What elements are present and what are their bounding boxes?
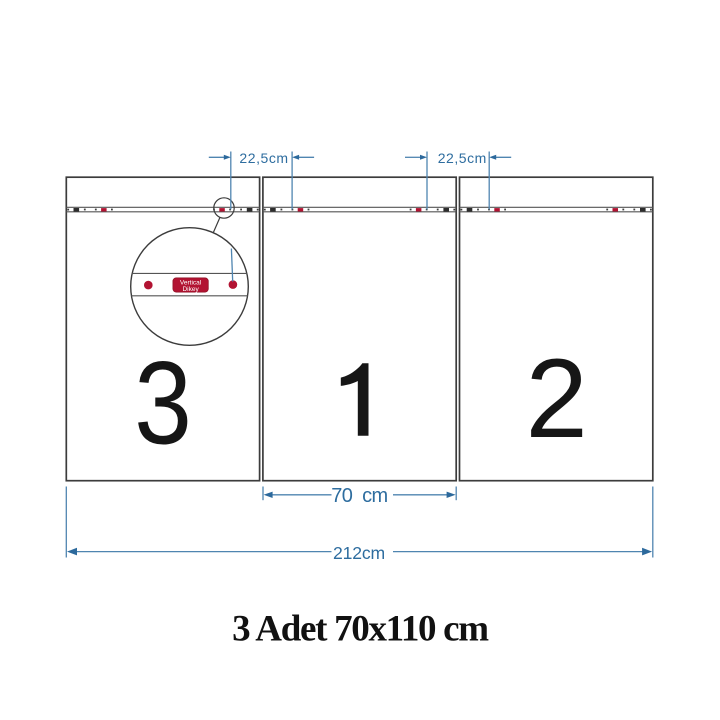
svg-text:70 cm: 70 cm	[331, 485, 387, 507]
svg-text:212cm: 212cm	[333, 543, 385, 563]
svg-text:22,5cm: 22,5cm	[239, 150, 288, 166]
svg-text:3: 3	[134, 336, 192, 469]
svg-text:3 Adet 70x110 cm: 3 Adet 70x110 cm	[232, 609, 489, 650]
svg-text:22,5cm: 22,5cm	[438, 150, 487, 166]
svg-text:Dikey: Dikey	[182, 286, 199, 293]
svg-text:2: 2	[526, 336, 588, 461]
